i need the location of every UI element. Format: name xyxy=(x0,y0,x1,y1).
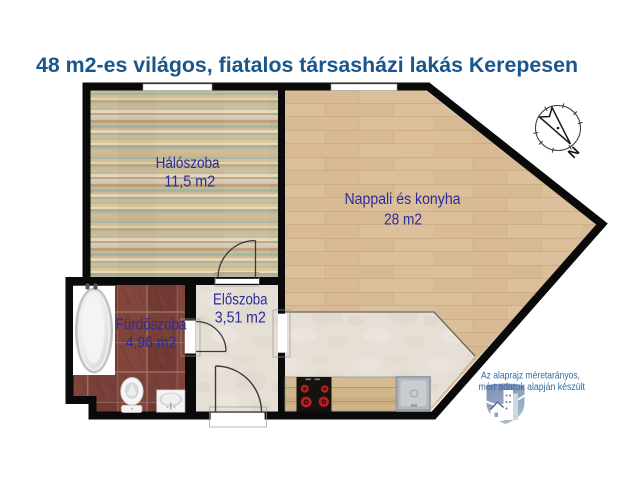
svg-text:Hálószoba: Hálószoba xyxy=(156,155,220,172)
svg-text:28 m2: 28 m2 xyxy=(384,212,422,229)
svg-text:mért adatok alapján készült: mért adatok alapján készült xyxy=(479,382,586,393)
svg-text:4,96 m2: 4,96 m2 xyxy=(126,335,177,352)
svg-text:11,5 m2: 11,5 m2 xyxy=(164,174,215,191)
svg-text:Az alaprajz méretarányos,: Az alaprajz méretarányos, xyxy=(481,371,580,382)
svg-text:Fürdőszoba: Fürdőszoba xyxy=(116,317,187,334)
svg-text:3,51 m2: 3,51 m2 xyxy=(215,309,266,326)
svg-text:Nappali és konyha: Nappali és konyha xyxy=(345,191,461,208)
svg-text:48 m2-es világos, fiatalos tár: 48 m2-es világos, fiatalos társasházi la… xyxy=(36,53,578,77)
svg-text:Előszoba: Előszoba xyxy=(213,292,268,309)
